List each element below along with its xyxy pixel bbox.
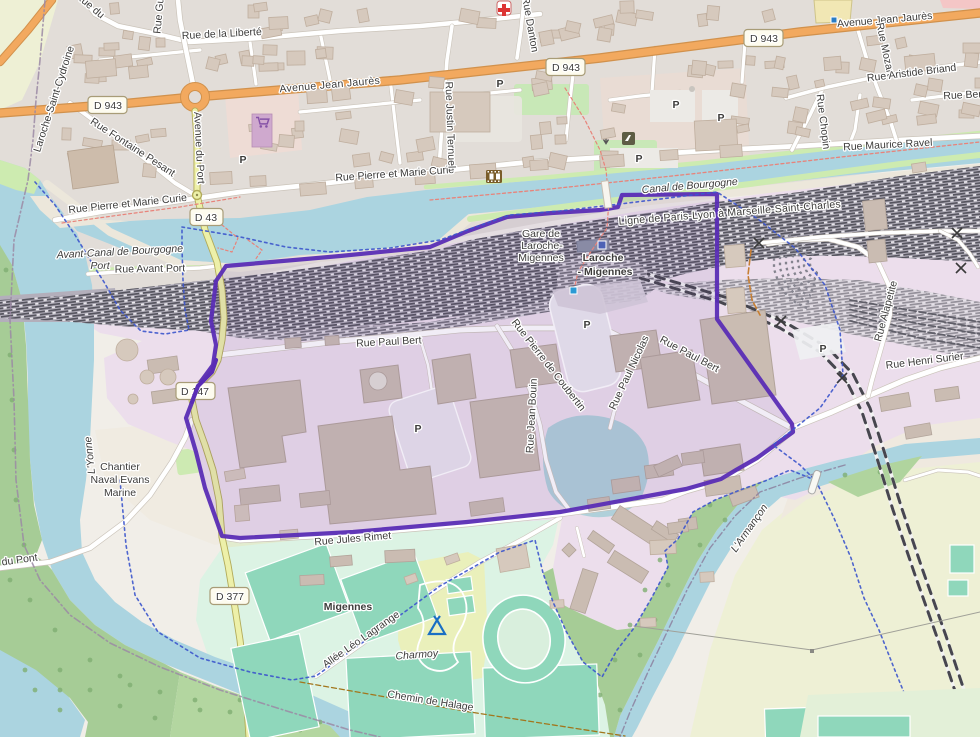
svg-text:Migennes: Migennes	[324, 601, 373, 613]
svg-text:Chantier: Chantier	[100, 461, 140, 473]
svg-text:P: P	[239, 154, 246, 166]
svg-text:D 377: D 377	[216, 591, 244, 603]
svg-text:Naval Evans: Naval Evans	[91, 474, 150, 486]
svg-text:Port: Port	[90, 260, 110, 272]
svg-text:Gare de: Gare de	[522, 228, 560, 240]
svg-text:Marine: Marine	[104, 487, 136, 499]
svg-text:- Migennes: - Migennes	[578, 266, 633, 278]
svg-text:P: P	[414, 423, 421, 435]
svg-text:D 43: D 43	[195, 212, 217, 224]
svg-text:Rue Berlio: Rue Berlio	[943, 88, 980, 103]
svg-text:P: P	[819, 343, 826, 355]
svg-text:P: P	[672, 99, 679, 111]
svg-text:D 943: D 943	[94, 100, 122, 112]
svg-text:D 943: D 943	[750, 33, 778, 45]
svg-text:Rue Avant Port: Rue Avant Port	[115, 262, 186, 275]
svg-text:P: P	[583, 319, 590, 331]
svg-text:Laroche: Laroche	[583, 252, 624, 264]
svg-text:P: P	[496, 78, 503, 90]
svg-text:P: P	[717, 112, 724, 124]
svg-text:D 943: D 943	[552, 62, 580, 74]
svg-text:P: P	[635, 153, 642, 165]
svg-text:Migennes: Migennes	[518, 252, 564, 264]
svg-text:Laroche-: Laroche-	[521, 240, 563, 252]
